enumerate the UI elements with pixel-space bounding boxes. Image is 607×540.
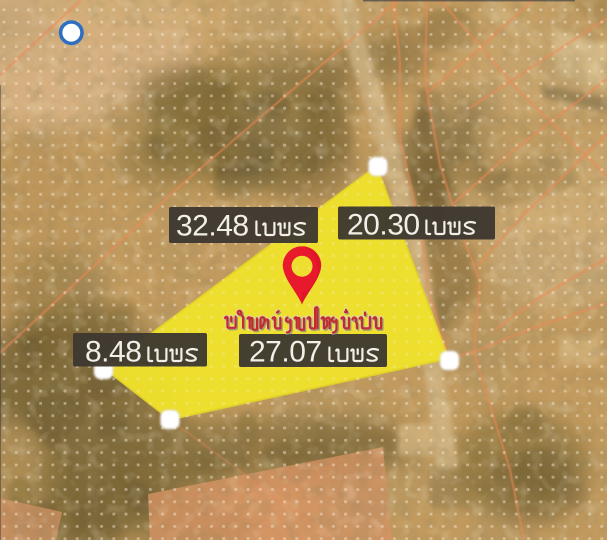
svg-text:20.30: 20.30 [347, 209, 420, 242]
svg-text:27.07: 27.07 [249, 336, 322, 369]
svg-text:8.48: 8.48 [85, 336, 141, 369]
svg-text:32.48: 32.48 [176, 210, 249, 243]
